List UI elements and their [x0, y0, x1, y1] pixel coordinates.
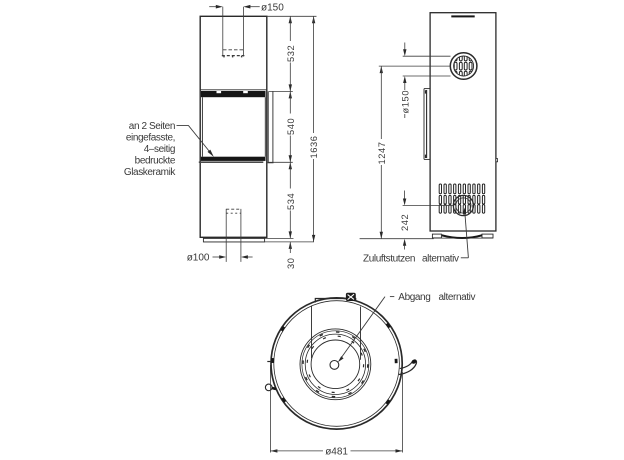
svg-text:4–seitig: 4–seitig [144, 144, 175, 155]
svg-text:534: 534 [286, 193, 296, 210]
svg-text:alternativ: alternativ [439, 292, 476, 303]
svg-text:30: 30 [286, 257, 296, 269]
svg-text:ø150: ø150 [400, 90, 410, 114]
svg-text:242: 242 [400, 214, 410, 231]
svg-text:540: 540 [286, 118, 296, 135]
svg-text:eingefasste,: eingefasste, [126, 132, 175, 143]
svg-text:ø100: ø100 [187, 253, 210, 264]
svg-text:ø481: ø481 [325, 447, 348, 458]
svg-text:ø150: ø150 [261, 3, 284, 14]
svg-text:an 2 Seiten: an 2 Seiten [129, 121, 175, 132]
svg-text:Zuluftstutzen: Zuluftstutzen [363, 253, 415, 264]
svg-text:532: 532 [286, 45, 296, 62]
svg-text:1247: 1247 [377, 141, 387, 164]
svg-text:1636: 1636 [309, 135, 319, 158]
svg-text:Abgang: Abgang [398, 292, 430, 303]
svg-text:Glaskeramik: Glaskeramik [124, 167, 177, 178]
svg-text:bedruckte: bedruckte [135, 155, 176, 166]
svg-text:alternativ: alternativ [422, 253, 459, 264]
